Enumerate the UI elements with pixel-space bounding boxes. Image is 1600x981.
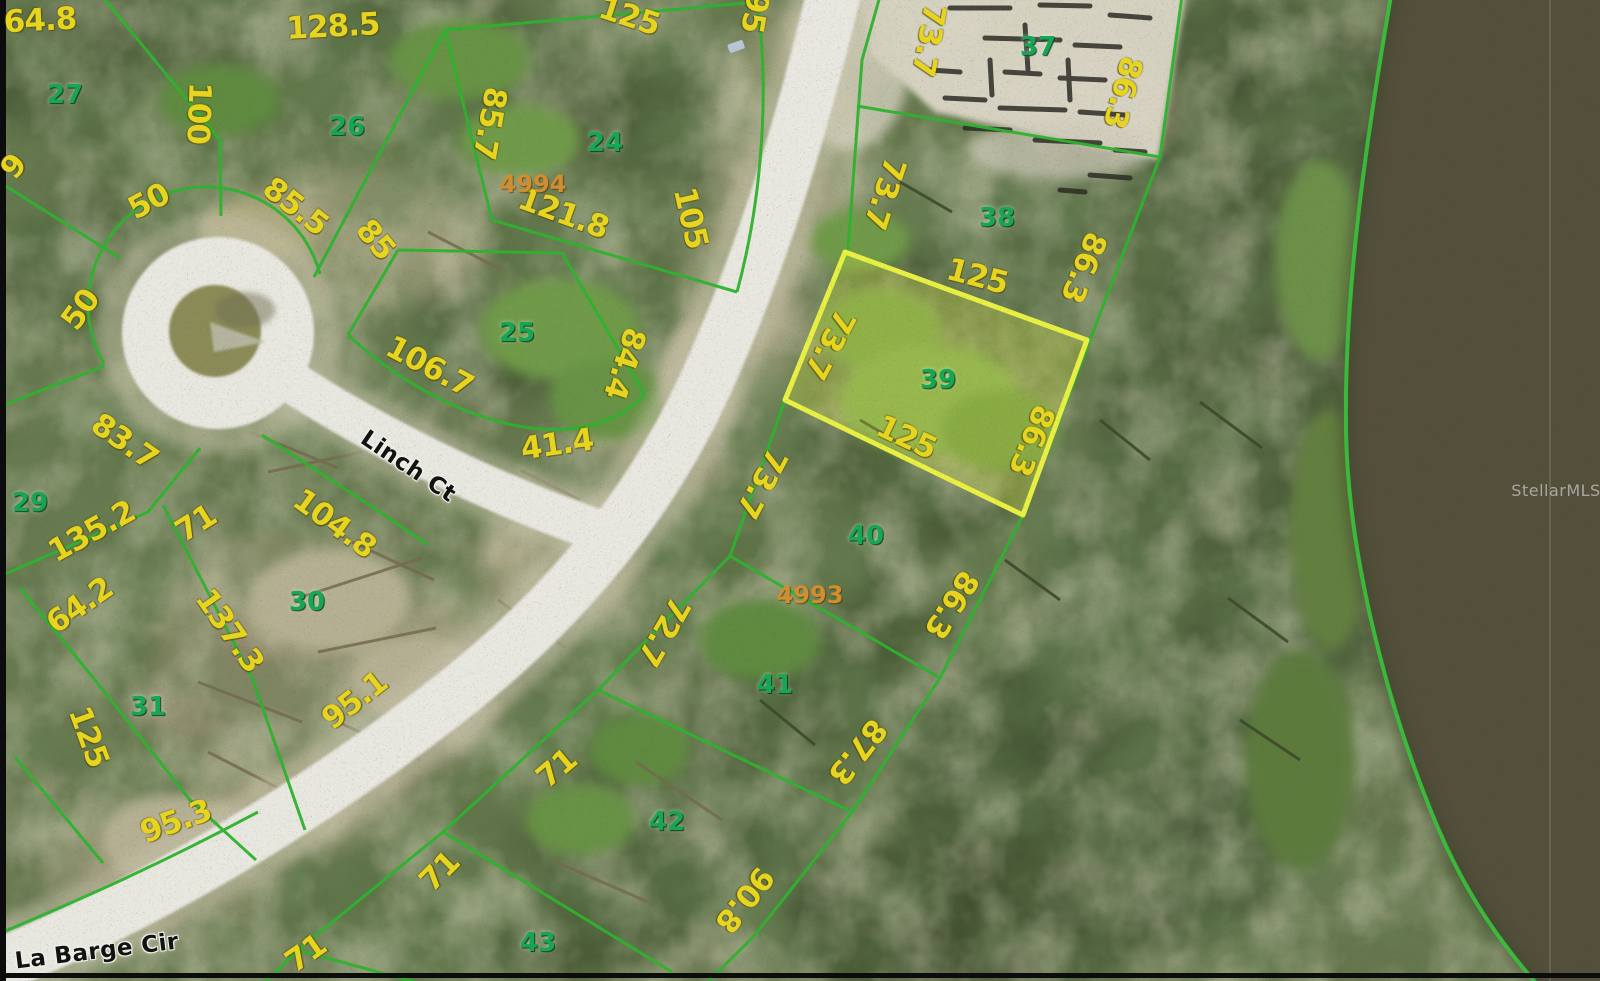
scan-artifacts bbox=[0, 0, 1600, 981]
bottom-border bbox=[0, 973, 1600, 978]
map-artwork bbox=[0, 0, 1600, 981]
scan-line bbox=[1549, 0, 1551, 981]
aerial-parcel-map: 64.8128.510095085.5855085.712595121.8105… bbox=[0, 0, 1600, 981]
left-border bbox=[0, 0, 6, 981]
